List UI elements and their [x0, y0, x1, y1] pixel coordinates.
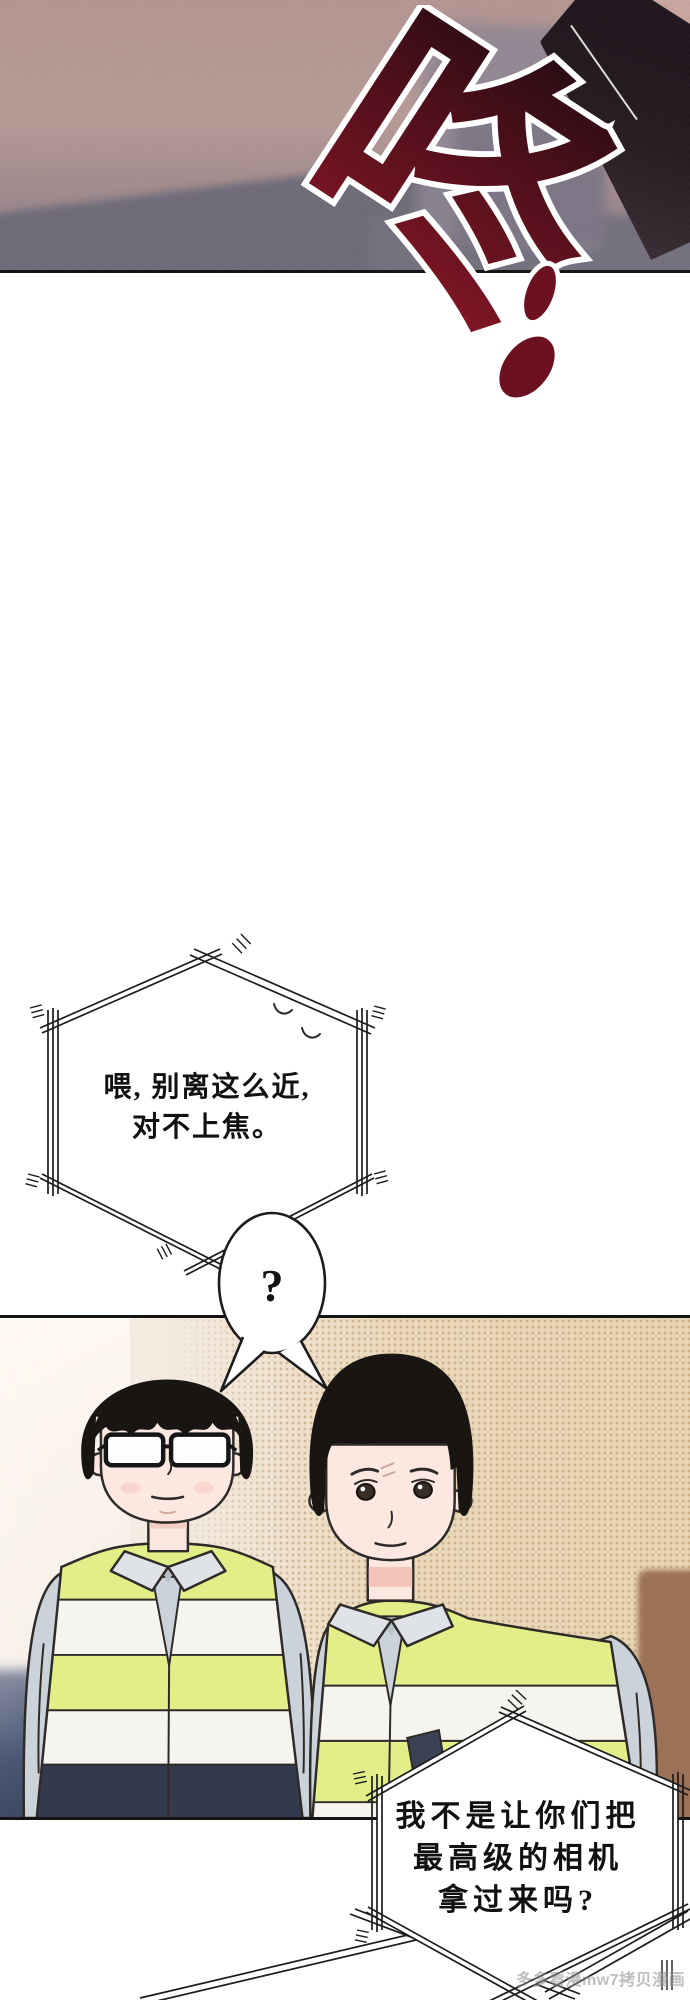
corner-ticks — [230, 932, 253, 955]
speech-bubble-1-line-1: 喂, 别离这么近, — [103, 1070, 310, 1103]
corner-ticks — [355, 1930, 369, 1942]
speech-bubble-2-line-1: 我不是让你们把 — [396, 1800, 641, 1833]
corner-ticks — [353, 1772, 367, 1784]
comic-page: 咚 — [0, 0, 690, 2000]
speech-bubble-2: 我不是让你们把 最高级的相机 拿过来吗? — [263, 1686, 690, 2000]
corner-ticks — [371, 1006, 385, 1019]
sfx-thud: 咚 — [235, 5, 690, 425]
speech-bubble-2-line-2: 最高级的相机 — [413, 1842, 623, 1875]
corner-ticks — [374, 1171, 388, 1184]
character-right-face — [326, 1444, 454, 1560]
site-watermark: 多多看漫mw7拷贝漫画 — [516, 1966, 690, 1990]
speech-bubble-1-line-2: 对不上焦。 — [132, 1110, 282, 1143]
question-text: ? — [261, 1260, 284, 1311]
corner-ticks — [30, 1005, 44, 1018]
corner-ticks — [506, 1689, 528, 1711]
question-bubble: ? — [205, 1205, 350, 1410]
speech-bubble-2-line-3: 拿过来吗? — [438, 1883, 598, 1917]
sfx-text: 咚 — [256, 5, 671, 390]
corner-ticks — [157, 1244, 171, 1259]
corner-ticks — [25, 1174, 39, 1187]
